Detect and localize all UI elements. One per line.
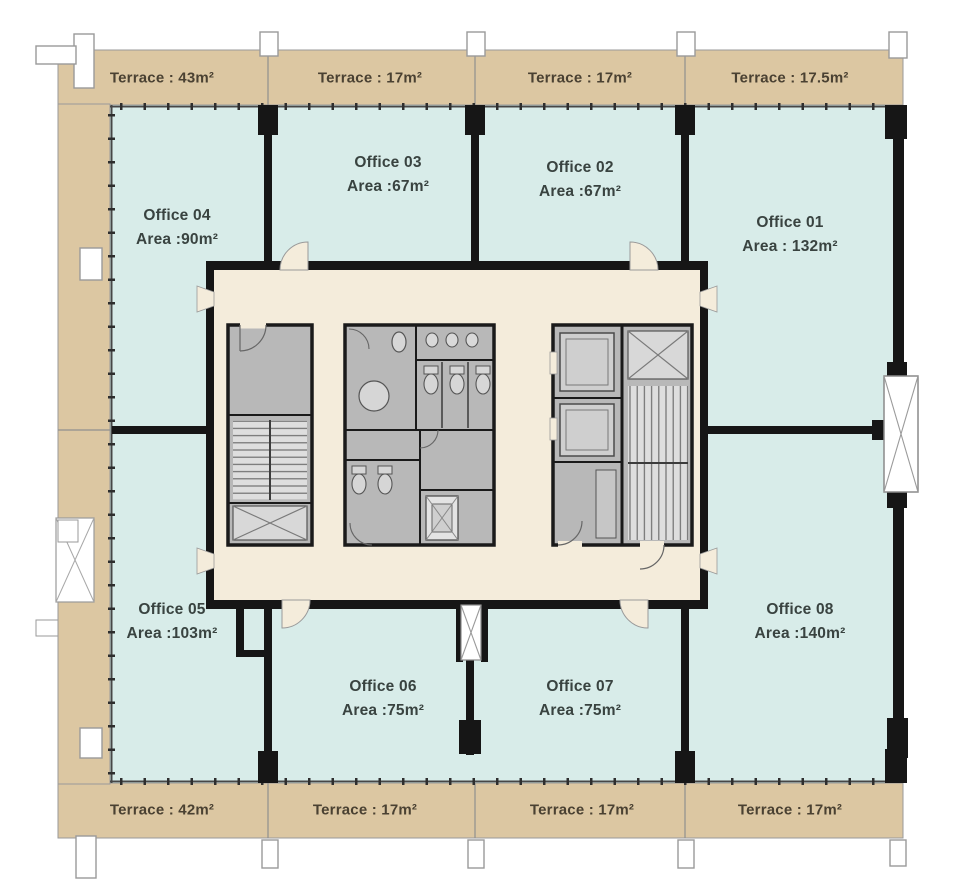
office-03-area: Area :67m²	[347, 175, 429, 199]
office-04-name: Office 04	[136, 204, 218, 228]
office-02-label: Office 02 Area :67m²	[539, 156, 621, 204]
office-05-name: Office 05	[127, 598, 218, 622]
office-05-label: Office 05 Area :103m²	[127, 598, 218, 646]
wc-block	[345, 325, 494, 545]
office-04-area: Area :90m²	[136, 228, 218, 252]
office-08-label: Office 08 Area :140m²	[755, 598, 846, 646]
terrace-bottom-2-label: Terrace : 17m²	[313, 802, 417, 819]
office-01-label: Office 01 Area : 132m²	[742, 211, 837, 259]
office-02-name: Office 02	[539, 156, 621, 180]
terrace-bottom-3-label: Terrace : 17m²	[530, 802, 634, 819]
office-04-label: Office 04 Area :90m²	[136, 204, 218, 252]
stairwell-left	[228, 322, 312, 546]
right-facade-shaft	[884, 376, 918, 492]
floor-plan: Office 01 Area : 132m² Office 02 Area :6…	[0, 0, 965, 894]
floorplan-drawing	[0, 0, 965, 894]
office-01-area: Area : 132m²	[742, 235, 837, 259]
office-03-name: Office 03	[347, 151, 429, 175]
terrace-bottom-1-label: Terrace : 42m²	[110, 802, 214, 819]
terrace-bottom-4-label: Terrace : 17m²	[738, 802, 842, 819]
terrace-top-3-label: Terrace : 17m²	[528, 70, 632, 87]
office-03-label: Office 03 Area :67m²	[347, 151, 429, 199]
terrace-top-1-label: Terrace : 43m²	[110, 70, 214, 87]
terrace-top-4-label: Terrace : 17.5m²	[731, 70, 848, 87]
office-06-label: Office 06 Area :75m²	[342, 675, 424, 723]
elevator-block	[550, 325, 692, 569]
office-07-name: Office 07	[539, 675, 621, 699]
office-05-area: Area :103m²	[127, 622, 218, 646]
office-02-area: Area :67m²	[539, 180, 621, 204]
office-07-label: Office 07 Area :75m²	[539, 675, 621, 723]
office-07-area: Area :75m²	[539, 699, 621, 723]
office-08-name: Office 08	[755, 598, 846, 622]
office-06-area: Area :75m²	[342, 699, 424, 723]
terrace-top-2-label: Terrace : 17m²	[318, 70, 422, 87]
office-06-name: Office 06	[342, 675, 424, 699]
office-01-name: Office 01	[742, 211, 837, 235]
office-08-area: Area :140m²	[755, 622, 846, 646]
shaft-between-06-07	[461, 605, 481, 660]
